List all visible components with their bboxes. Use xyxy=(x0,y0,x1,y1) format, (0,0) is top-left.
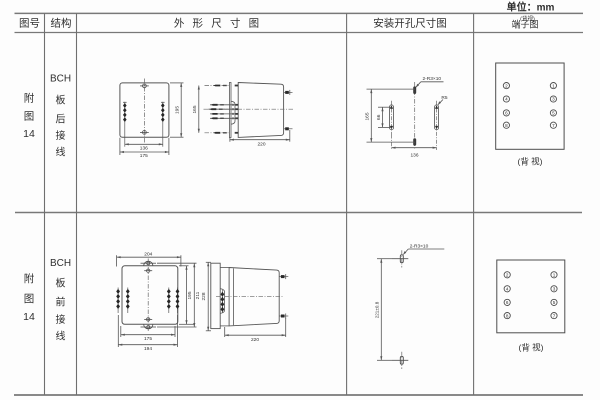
svg-text:3: 3 xyxy=(552,97,555,102)
svg-text:175: 175 xyxy=(144,336,152,342)
svg-text:3: 3 xyxy=(553,286,556,291)
svg-text:前: 前 xyxy=(56,296,66,309)
svg-text:端子图: 端子图 xyxy=(511,19,538,30)
svg-text:220: 220 xyxy=(251,337,259,343)
svg-text:后: 后 xyxy=(56,114,66,126)
svg-text:8: 8 xyxy=(505,123,508,128)
svg-text:2: 2 xyxy=(505,83,508,88)
svg-text:195: 195 xyxy=(187,291,193,299)
svg-text:板: 板 xyxy=(56,94,66,107)
svg-text:寸: 寸 xyxy=(230,17,241,30)
svg-text:195: 195 xyxy=(175,106,181,114)
svg-text:接: 接 xyxy=(56,129,66,142)
svg-text:(背 视): (背 视) xyxy=(518,343,543,353)
svg-text:6: 6 xyxy=(505,111,508,116)
svg-text:2-R3×10: 2-R3×10 xyxy=(410,243,429,249)
svg-text:图: 图 xyxy=(24,293,35,305)
svg-text:7: 7 xyxy=(552,123,555,128)
svg-text:6: 6 xyxy=(506,300,509,305)
svg-text:136: 136 xyxy=(410,153,418,159)
svg-text:2-R3×10: 2-R3×10 xyxy=(423,76,442,82)
svg-text:220: 220 xyxy=(257,142,265,148)
svg-text:5: 5 xyxy=(553,300,556,305)
svg-text:136: 136 xyxy=(140,145,148,151)
svg-text:(背 视): (背 视) xyxy=(517,157,542,167)
svg-text:221±0.8: 221±0.8 xyxy=(375,301,380,318)
svg-text:204: 204 xyxy=(144,251,152,257)
svg-text:8: 8 xyxy=(506,313,509,318)
svg-text:66: 66 xyxy=(376,114,382,120)
svg-text:BCH: BCH xyxy=(50,258,71,269)
svg-text:165: 165 xyxy=(365,112,371,120)
svg-text:2: 2 xyxy=(506,272,509,277)
svg-text:14: 14 xyxy=(23,311,35,323)
svg-text:1: 1 xyxy=(553,272,556,277)
svg-text:外: 外 xyxy=(174,18,185,30)
svg-text:附: 附 xyxy=(24,92,35,105)
svg-text:尺: 尺 xyxy=(211,18,222,30)
svg-text:附: 附 xyxy=(24,272,35,285)
svg-text:图: 图 xyxy=(24,111,35,123)
svg-text:4: 4 xyxy=(506,286,509,291)
svg-text:线: 线 xyxy=(56,330,66,343)
svg-text:1: 1 xyxy=(552,83,555,88)
svg-text:7: 7 xyxy=(553,313,556,318)
svg-text:4: 4 xyxy=(505,97,508,102)
svg-text:R5: R5 xyxy=(441,95,447,101)
svg-text:安装开孔尺寸图: 安装开孔尺寸图 xyxy=(373,17,447,30)
svg-text:5: 5 xyxy=(552,111,555,116)
svg-text:165: 165 xyxy=(192,105,198,113)
svg-text:BCH: BCH xyxy=(50,74,71,85)
svg-text:图号: 图号 xyxy=(19,18,40,30)
svg-text:228: 228 xyxy=(201,292,207,300)
svg-text:单位：mm: 单位：mm xyxy=(507,1,555,14)
svg-text:图: 图 xyxy=(249,18,260,30)
svg-text:结构: 结构 xyxy=(51,17,72,30)
svg-text:线: 线 xyxy=(56,146,66,159)
svg-text:211: 211 xyxy=(195,291,201,299)
svg-text:175: 175 xyxy=(140,153,148,159)
svg-text:194: 194 xyxy=(144,346,152,352)
svg-text:接: 接 xyxy=(56,313,66,326)
svg-text:板: 板 xyxy=(56,277,66,290)
svg-text:形: 形 xyxy=(193,18,204,30)
svg-text:14: 14 xyxy=(23,128,35,140)
